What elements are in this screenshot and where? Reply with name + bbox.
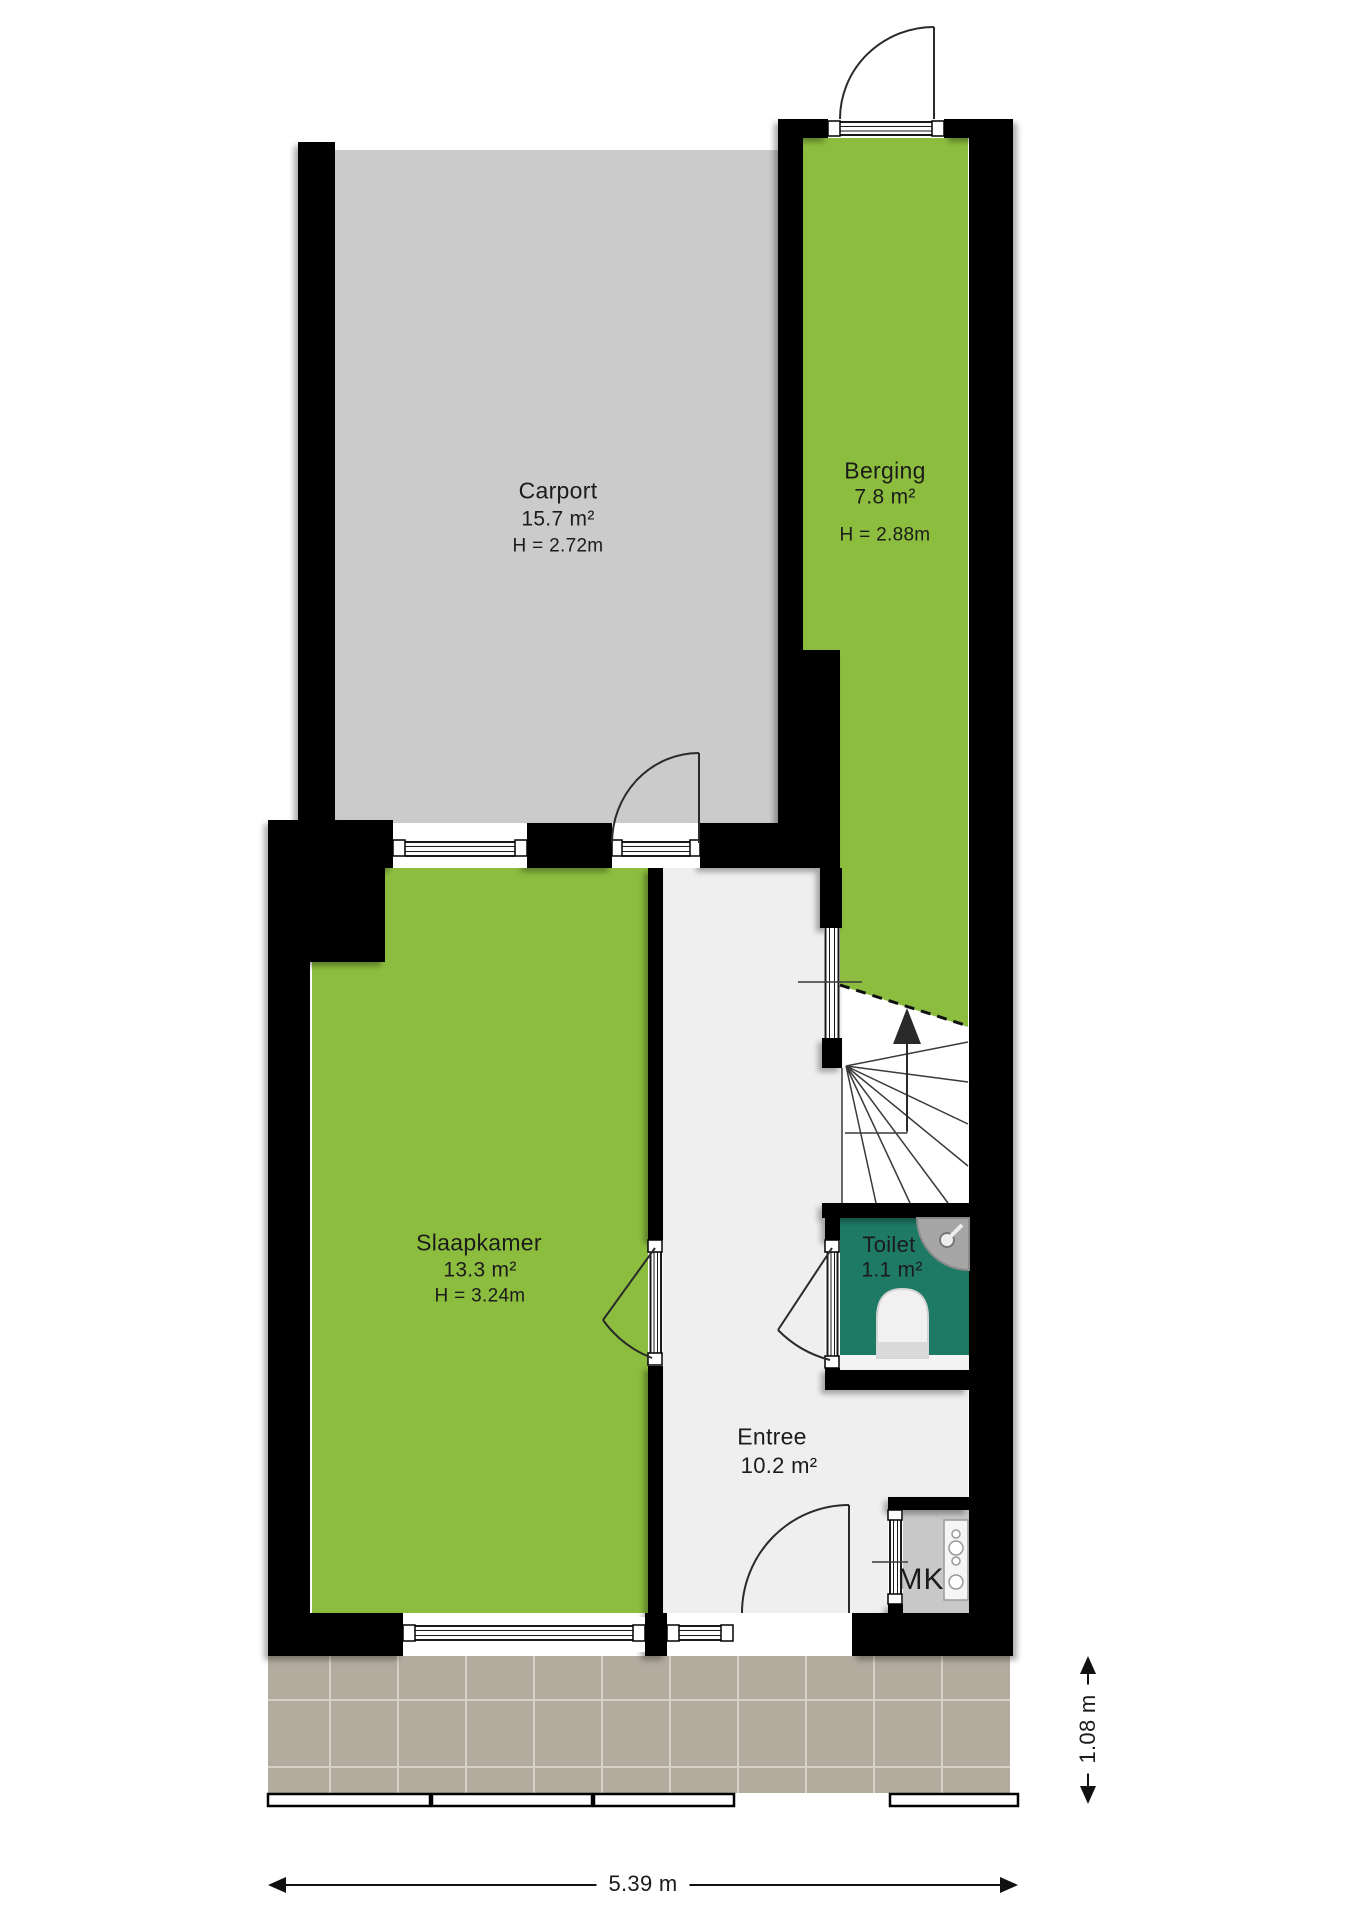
wall-toilet-west-upper <box>825 1218 840 1240</box>
berging-name-label: Berging <box>844 460 925 483</box>
jamb <box>721 1625 733 1641</box>
boundary-segments <box>268 1794 1018 1806</box>
wall-north-band-b <box>700 823 778 868</box>
wall-berging-west-thick <box>778 650 840 868</box>
arrow-right-icon <box>1000 1877 1018 1893</box>
toilet-name-label: Toilet <box>862 1234 915 1256</box>
wall-slaapkamer-upper <box>648 868 663 1240</box>
opening-south-window-1 <box>403 1617 645 1652</box>
opening-carport-door <box>612 823 700 868</box>
dimension-depth-label: 1.08 m <box>1077 1684 1099 1773</box>
wall-meterkast-west-foot <box>888 1604 903 1613</box>
boundary-segment <box>594 1794 734 1806</box>
boundary-segment <box>268 1794 430 1806</box>
arrow-up-icon <box>1080 1656 1096 1674</box>
toilet-bowl-base <box>877 1342 928 1358</box>
jamb <box>828 121 840 136</box>
dimension-width-label: 5.39 m <box>596 1873 689 1895</box>
slaapkamer-area-label: 13.3 m² <box>443 1260 516 1281</box>
meter-dial-icon <box>949 1575 963 1589</box>
wall-bottom-right <box>852 1613 1013 1656</box>
wall-toilet-south <box>825 1370 969 1390</box>
entree-name-label: Entree <box>737 1426 807 1449</box>
meter-dial-icon <box>952 1557 960 1565</box>
opening-front-door <box>733 1613 852 1656</box>
berging-height-label: H = 2.88m <box>840 526 931 545</box>
jamb <box>648 1240 662 1252</box>
meter-cabinet <box>944 1520 968 1600</box>
wall-slaapkamer-lower <box>648 1366 663 1613</box>
slaapkamer-name-label: Slaapkamer <box>416 1232 542 1255</box>
berging-area-label: 7.8 m² <box>854 487 915 508</box>
jamb <box>932 121 944 136</box>
wall-stair-post <box>822 1038 842 1068</box>
slaapkamer-height-label: H = 3.24m <box>435 1287 526 1306</box>
wall-bottom-post <box>645 1613 667 1656</box>
meter-dial-icon <box>952 1530 960 1538</box>
floor-plan-drawing <box>0 0 1358 1920</box>
wall-left-main <box>268 962 310 1613</box>
floor-plan: Carport 15.7 m² H = 2.72m Berging 7.8 m²… <box>0 0 1358 1920</box>
wall-left-corner-upper <box>268 820 393 868</box>
jamb <box>888 1510 902 1520</box>
arrow-down-icon <box>1080 1786 1096 1804</box>
jamb <box>393 840 405 856</box>
wall-berging-top-right <box>944 119 1013 138</box>
jamb <box>825 1356 839 1368</box>
carport-area-label: 15.7 m² <box>521 509 594 530</box>
wall-berging-west-upper <box>778 138 803 660</box>
jamb <box>648 1353 662 1365</box>
wall-stair-head <box>820 868 842 928</box>
wall-meterkast-north <box>888 1497 969 1510</box>
jamb <box>667 1625 679 1641</box>
wall-east <box>969 119 1013 1656</box>
jamb <box>633 1625 645 1641</box>
wall-north-band-a <box>525 823 612 868</box>
wall-bottom-left-corner <box>268 1613 403 1656</box>
jamb <box>515 840 527 856</box>
arrow-left-icon <box>268 1877 286 1893</box>
boundary-segment <box>890 1794 1018 1806</box>
jamb <box>612 840 622 856</box>
boundary-segment <box>432 1794 592 1806</box>
carport-name-label: Carport <box>519 480 598 503</box>
berging-door-arc <box>840 27 934 119</box>
meter-dial-icon <box>949 1541 963 1555</box>
jamb <box>825 1240 839 1252</box>
carport-height-label: H = 2.72m <box>513 537 604 556</box>
wall-left-step <box>268 868 385 962</box>
terrace-tiles <box>268 1656 1010 1793</box>
meterkast-label: MK <box>898 1565 945 1595</box>
jamb <box>403 1625 415 1641</box>
wall-toilet-north <box>822 1203 969 1218</box>
wall-carport-left <box>298 142 335 823</box>
entree-area-label: 10.2 m² <box>741 1455 818 1477</box>
opening-north-window <box>393 823 527 868</box>
toilet-area-label: 1.1 m² <box>861 1260 922 1281</box>
wall-berging-top-left <box>778 119 828 138</box>
